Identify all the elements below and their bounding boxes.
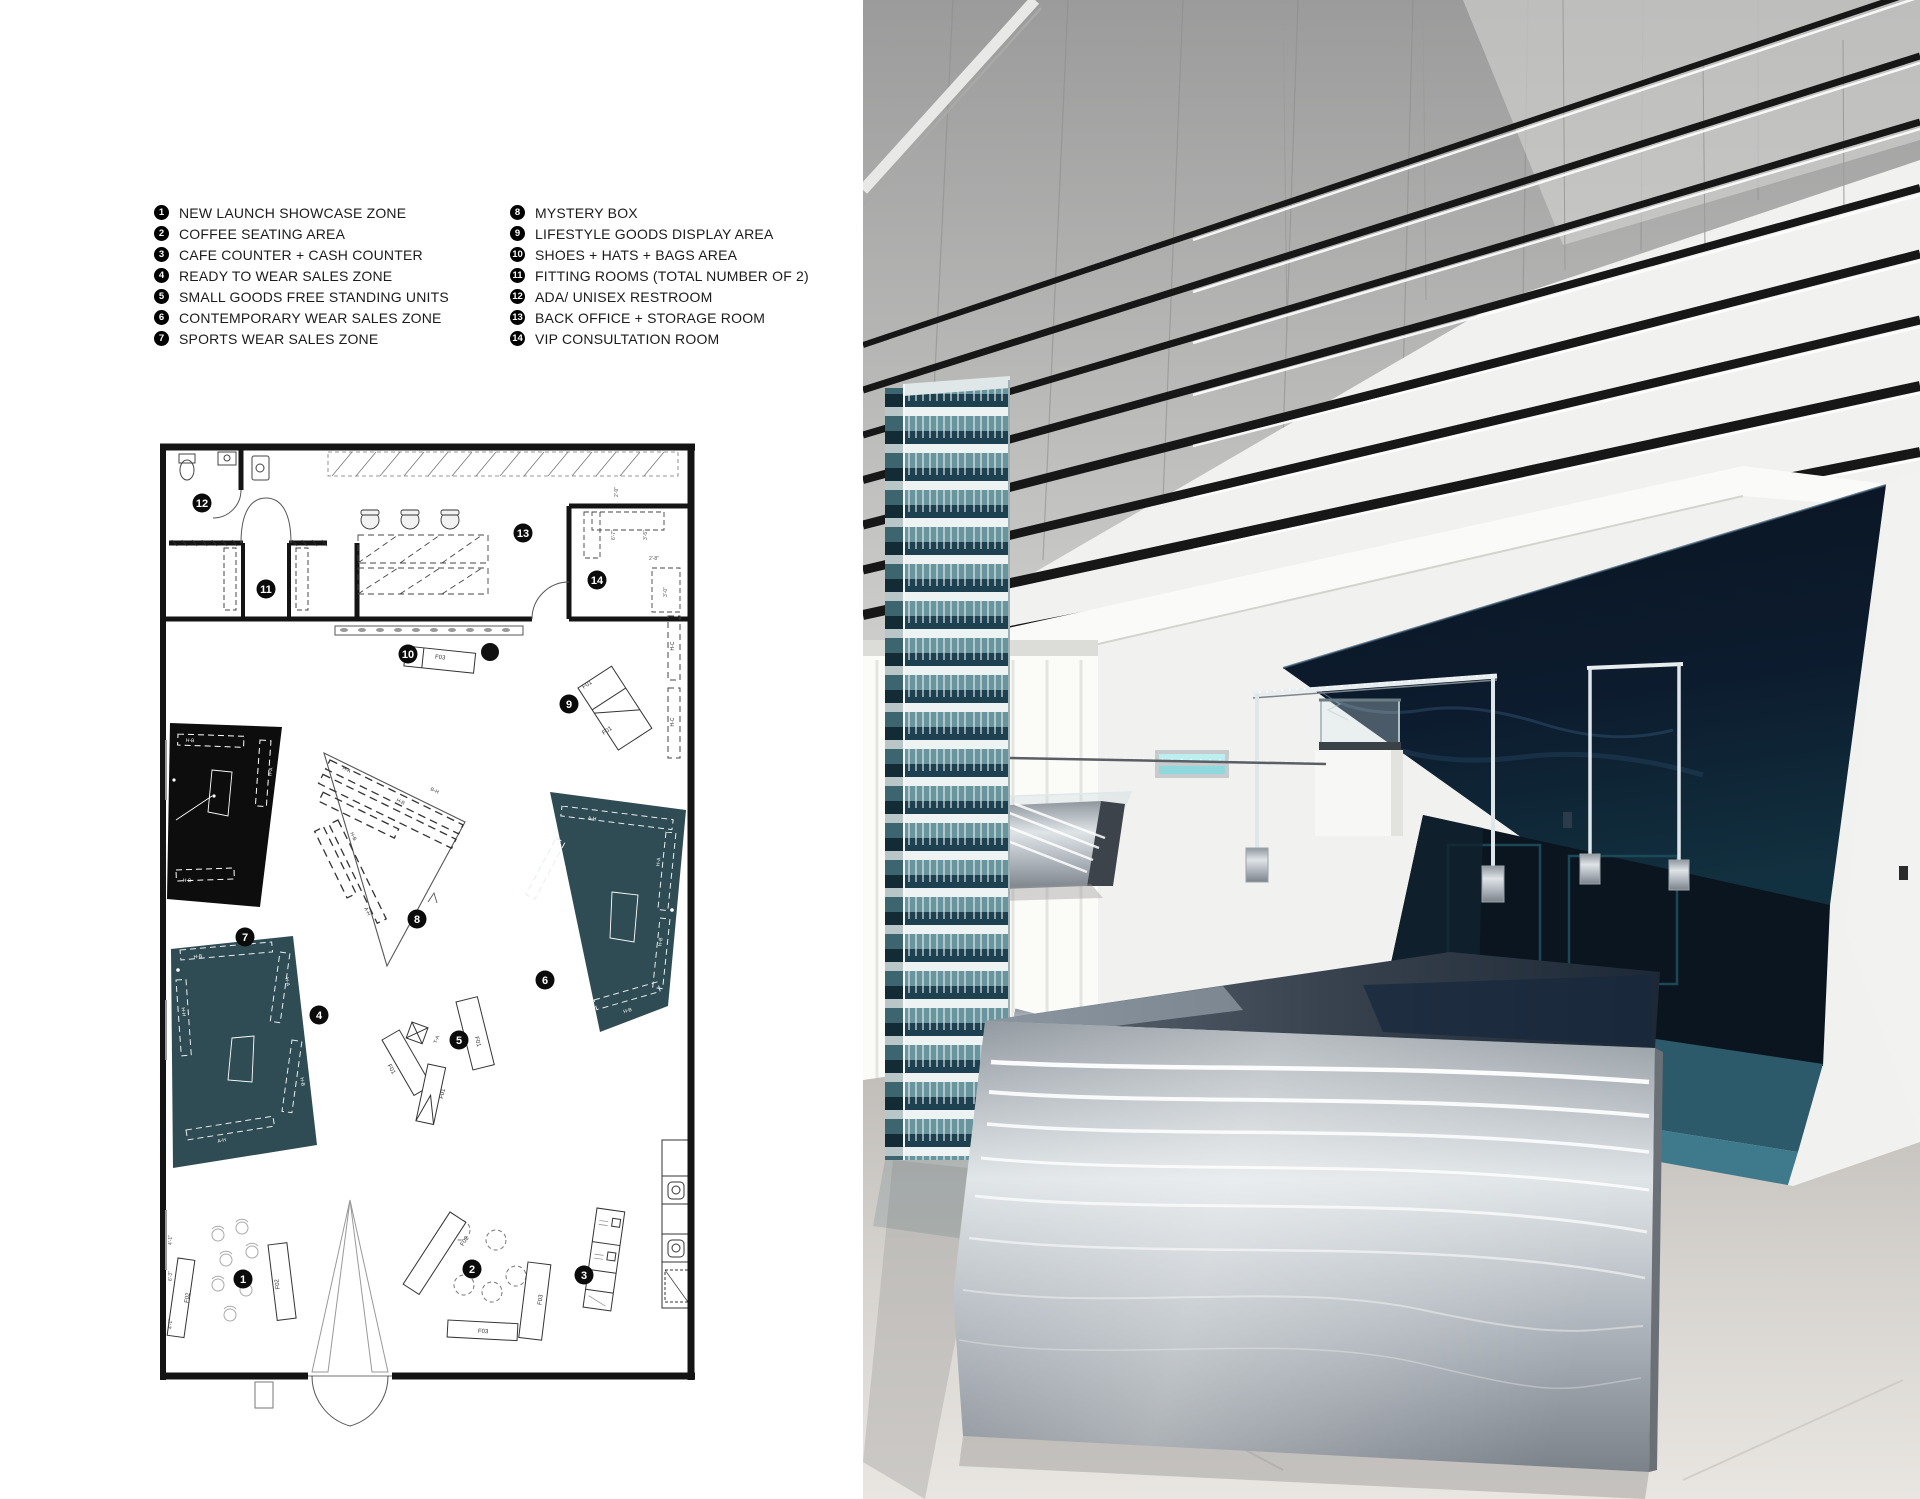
svg-text:9: 9 — [566, 699, 572, 711]
display-pedestal — [1315, 700, 1403, 836]
legend-column-right: 8MYSTERY BOX9LIFESTYLE GOODS DISPLAY ARE… — [510, 202, 809, 349]
plan-label: H-B — [183, 878, 193, 884]
legend-number-badge: 4 — [154, 268, 169, 283]
plan-label: A-H — [588, 816, 598, 823]
legend-item: 11FITTING ROOMS (TOTAL NUMBER OF 2) — [510, 265, 809, 286]
plan-label: 6'-3" — [168, 1271, 174, 1281]
legend-number-badge: 3 — [154, 247, 169, 262]
legend-number-badge: 13 — [510, 310, 525, 325]
legend-number-badge: 11 — [510, 268, 525, 283]
plan-marker: 5 — [450, 1031, 469, 1050]
presentation-board: 1NEW LAUNCH SHOWCASE ZONE2COFFEE SEATING… — [0, 0, 1920, 1499]
legend-number-badge: 5 — [154, 289, 169, 304]
plan-label: 6'-7" — [611, 530, 617, 540]
plan-marker: 6 — [536, 971, 555, 990]
legend-number-badge: 14 — [510, 331, 525, 346]
legend-item: 5SMALL GOODS FREE STANDING UNITS — [154, 286, 444, 307]
plan-label: H-H — [180, 1007, 187, 1017]
legend-item: 1NEW LAUNCH SHOWCASE ZONE — [154, 202, 444, 223]
display-rail — [335, 626, 523, 635]
svg-text:13: 13 — [517, 528, 529, 540]
floor-plan: 2'-9"6'-7"3'-5"2'-8"3'-0"4'-1"6'-3"4'-1"… — [160, 440, 695, 1430]
ready-to-wear-zone — [171, 936, 317, 1168]
legend-column-left: 1NEW LAUNCH SHOWCASE ZONE2COFFEE SEATING… — [154, 202, 444, 349]
legend-item: 14VIP CONSULTATION ROOM — [510, 328, 809, 349]
legend-number-badge: 12 — [510, 289, 525, 304]
plan-label: F03 — [478, 1329, 489, 1336]
legend-label: READY TO WEAR SALES ZONE — [179, 268, 392, 284]
legend-item: 13BACK OFFICE + STORAGE ROOM — [510, 307, 809, 328]
column-dot — [481, 643, 499, 661]
svg-text:7: 7 — [242, 932, 248, 944]
plan-marker: 9 — [560, 695, 579, 714]
office-chairs — [361, 510, 459, 529]
plan-label: H-B — [658, 937, 665, 947]
plan-label: H-A — [267, 767, 274, 777]
svg-text:1: 1 — [240, 1274, 246, 1286]
legend-item: 3CAFE COUNTER + CASH COUNTER — [154, 244, 444, 265]
plan-marker: 3 — [575, 1266, 594, 1285]
svg-text:12: 12 — [196, 498, 208, 510]
plan-label: H-B — [193, 954, 203, 961]
legend-label: SHOES + HATS + BAGS AREA — [535, 247, 737, 263]
plan-marker: 12 — [193, 494, 212, 513]
legend-label: SMALL GOODS FREE STANDING UNITS — [179, 289, 449, 305]
legend-label: FITTING ROOMS (TOTAL NUMBER OF 2) — [535, 268, 809, 284]
legend-label: MYSTERY BOX — [535, 205, 638, 221]
foreground-counter — [953, 952, 1663, 1499]
legend-number-badge: 10 — [510, 247, 525, 262]
legend-label: CONTEMPORARY WEAR SALES ZONE — [179, 310, 442, 326]
legend-number-badge: 7 — [154, 331, 169, 346]
plan-label: H-B — [186, 738, 196, 744]
svg-text:5: 5 — [456, 1035, 462, 1047]
legend-number-badge: 9 — [510, 226, 525, 241]
plan-label: 3'-0" — [663, 587, 669, 597]
svg-text:2: 2 — [469, 1264, 475, 1276]
legend-item: 7SPORTS WEAR SALES ZONE — [154, 328, 444, 349]
legend-number-badge: 2 — [154, 226, 169, 241]
svg-text:14: 14 — [591, 575, 604, 587]
back-counter-cabinets — [662, 1140, 691, 1308]
legend-label: ADA/ UNISEX RESTROOM — [535, 289, 712, 305]
legend-label: CAFE COUNTER + CASH COUNTER — [179, 247, 423, 263]
svg-text:11: 11 — [260, 584, 272, 596]
legend-label: SPORTS WEAR SALES ZONE — [179, 331, 378, 347]
legend-number-badge: 1 — [154, 205, 169, 220]
svg-text:8: 8 — [414, 914, 420, 926]
plan-marker: 8 — [408, 910, 427, 929]
plan-marker: 2 — [463, 1260, 482, 1279]
legend-item: 6CONTEMPORARY WEAR SALES ZONE — [154, 307, 444, 328]
plan-marker: 13 — [514, 524, 533, 543]
plan-label: 4'-1" — [168, 1319, 174, 1329]
plan-label: 3'-5" — [643, 530, 649, 540]
plan-marker: 1 — [234, 1270, 253, 1289]
legend-label: COFFEE SEATING AREA — [179, 226, 345, 242]
plan-marker: 10 — [399, 645, 418, 664]
plan-label: F03 — [435, 654, 447, 661]
plan-legend: 1NEW LAUNCH SHOWCASE ZONE2COFFEE SEATING… — [154, 202, 809, 349]
legend-label: VIP CONSULTATION ROOM — [535, 331, 719, 347]
legend-label: LIFESTYLE GOODS DISPLAY AREA — [535, 226, 774, 242]
plan-label: 4'-1" — [168, 1235, 174, 1245]
legend-item: 12ADA/ UNISEX RESTROOM — [510, 286, 809, 307]
legend-item: 9LIFESTYLE GOODS DISPLAY AREA — [510, 223, 809, 244]
svg-text:4: 4 — [316, 1010, 323, 1022]
legend-label: NEW LAUNCH SHOWCASE ZONE — [179, 205, 406, 221]
plan-marker: 4 — [310, 1006, 329, 1025]
plan-label: H-C — [670, 717, 676, 726]
plan-marker: 7 — [236, 928, 255, 947]
plan-marker: 11 — [257, 580, 276, 599]
plan-marker: 14 — [588, 571, 607, 590]
legend-item: 2COFFEE SEATING AREA — [154, 223, 444, 244]
switch-reflection — [1563, 812, 1572, 828]
plan-label: 2'-9" — [614, 487, 620, 497]
legend-label: BACK OFFICE + STORAGE ROOM — [535, 310, 765, 326]
legend-item: 10SHOES + HATS + BAGS AREA — [510, 244, 809, 265]
svg-text:6: 6 — [542, 975, 548, 987]
plan-label: H-A — [656, 857, 663, 867]
legend-number-badge: 8 — [510, 205, 525, 220]
plan-label: 2'-8" — [649, 556, 659, 562]
plan-label: H-C — [670, 641, 676, 650]
backlit-shelf — [1155, 750, 1229, 778]
legend-item: 8MYSTERY BOX — [510, 202, 809, 223]
legend-number-badge: 6 — [154, 310, 169, 325]
svg-text:10: 10 — [402, 649, 414, 661]
legend-item: 4READY TO WEAR SALES ZONE — [154, 265, 444, 286]
svg-text:3: 3 — [581, 1270, 587, 1282]
outlet — [1899, 866, 1908, 880]
interior-photo — [863, 0, 1920, 1499]
